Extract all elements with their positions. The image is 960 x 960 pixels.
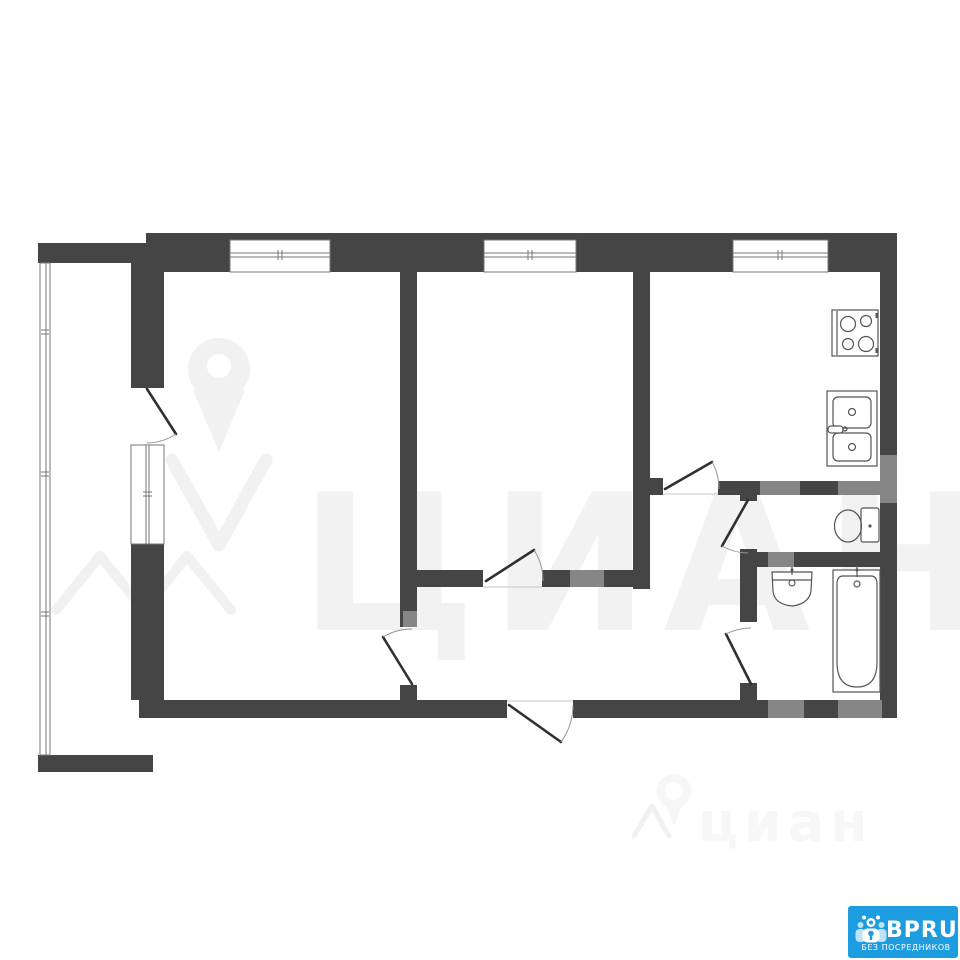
bpru-people-icon [858, 922, 864, 928]
bathroom-sink-faucet-dot [791, 569, 794, 572]
watermark-wall-patch [760, 481, 800, 495]
balcony-door-leaf [147, 389, 176, 434]
bathtub [833, 570, 880, 692]
balcony-glazing [40, 263, 50, 755]
watermark-wall-patch [570, 570, 604, 587]
watermark-wall-patch [768, 552, 794, 567]
bpru-subtitle: БЕЗ ПОСРЕДНИКОВ [861, 943, 950, 952]
watermark-wall-patch [403, 611, 417, 628]
window-living [230, 240, 330, 272]
wall-bottom-left [139, 700, 507, 718]
entrance-door-arc [561, 705, 573, 742]
wall-balcony-partition-upper [131, 243, 164, 388]
watermark-wall-patch [838, 481, 880, 495]
watermark-pin-tail [193, 390, 245, 452]
wall-bedroom-bottom-left [417, 570, 483, 587]
window-bedroom [484, 240, 576, 272]
bathroom-sink [772, 572, 812, 606]
watermark-bottom-pin-tail [664, 800, 684, 826]
watermark-layer: ЦИАНциан [56, 338, 960, 854]
watermark-chevron [172, 460, 266, 545]
wall-wc-bath-separator [740, 552, 880, 567]
entrance-door-leaf [509, 705, 561, 742]
wall-bath-left-stub [740, 683, 757, 700]
bpru-people-icon [876, 916, 880, 920]
watermark-wall-patch [838, 700, 882, 718]
watermark-wall-patch [768, 700, 804, 718]
bpru-people-icon [879, 922, 885, 928]
toilet-button [868, 524, 871, 527]
stove-knob [876, 348, 879, 353]
wall-balcony-partition-lower [131, 544, 164, 700]
watermark-wall-patch [880, 455, 897, 503]
kitchen-sink-faucet [828, 426, 843, 433]
bpru-title: BPRU [886, 918, 958, 943]
floor-plan-image: ЦИАНцианBPRUБЕЗ ПОСРЕДНИКОВ [0, 0, 960, 960]
window-kitchen [733, 240, 828, 272]
wall-balcony-top [38, 243, 146, 263]
bpru-people-icon [862, 916, 866, 920]
balcony-door-arc [147, 434, 176, 443]
bpru-keyhole-icon [870, 936, 872, 941]
wall-living-hall-upper [400, 272, 417, 627]
stove-knob [876, 313, 879, 318]
wall-balcony-bottom [38, 755, 153, 772]
wall-living-hall-stub [400, 685, 417, 700]
watermark-bottom-text: циан [698, 791, 874, 854]
window-balcony-partition [131, 445, 164, 544]
bpru-keyhole-icon [868, 931, 874, 937]
badge-layer: BPRUБЕЗ ПОСРЕДНИКОВ [848, 906, 958, 958]
bpru-people-icon [869, 921, 873, 925]
floor-plan-svg: ЦИАНцианBPRUБЕЗ ПОСРЕДНИКОВ [0, 0, 960, 960]
bathtub-faucet-dot [856, 569, 859, 572]
watermark-pin-hole [207, 354, 231, 378]
watermark-bottom-zigzag [634, 806, 669, 836]
wall-bedroom-kitchen [633, 272, 650, 589]
wall-kitchen-bottom-stub [650, 478, 663, 495]
